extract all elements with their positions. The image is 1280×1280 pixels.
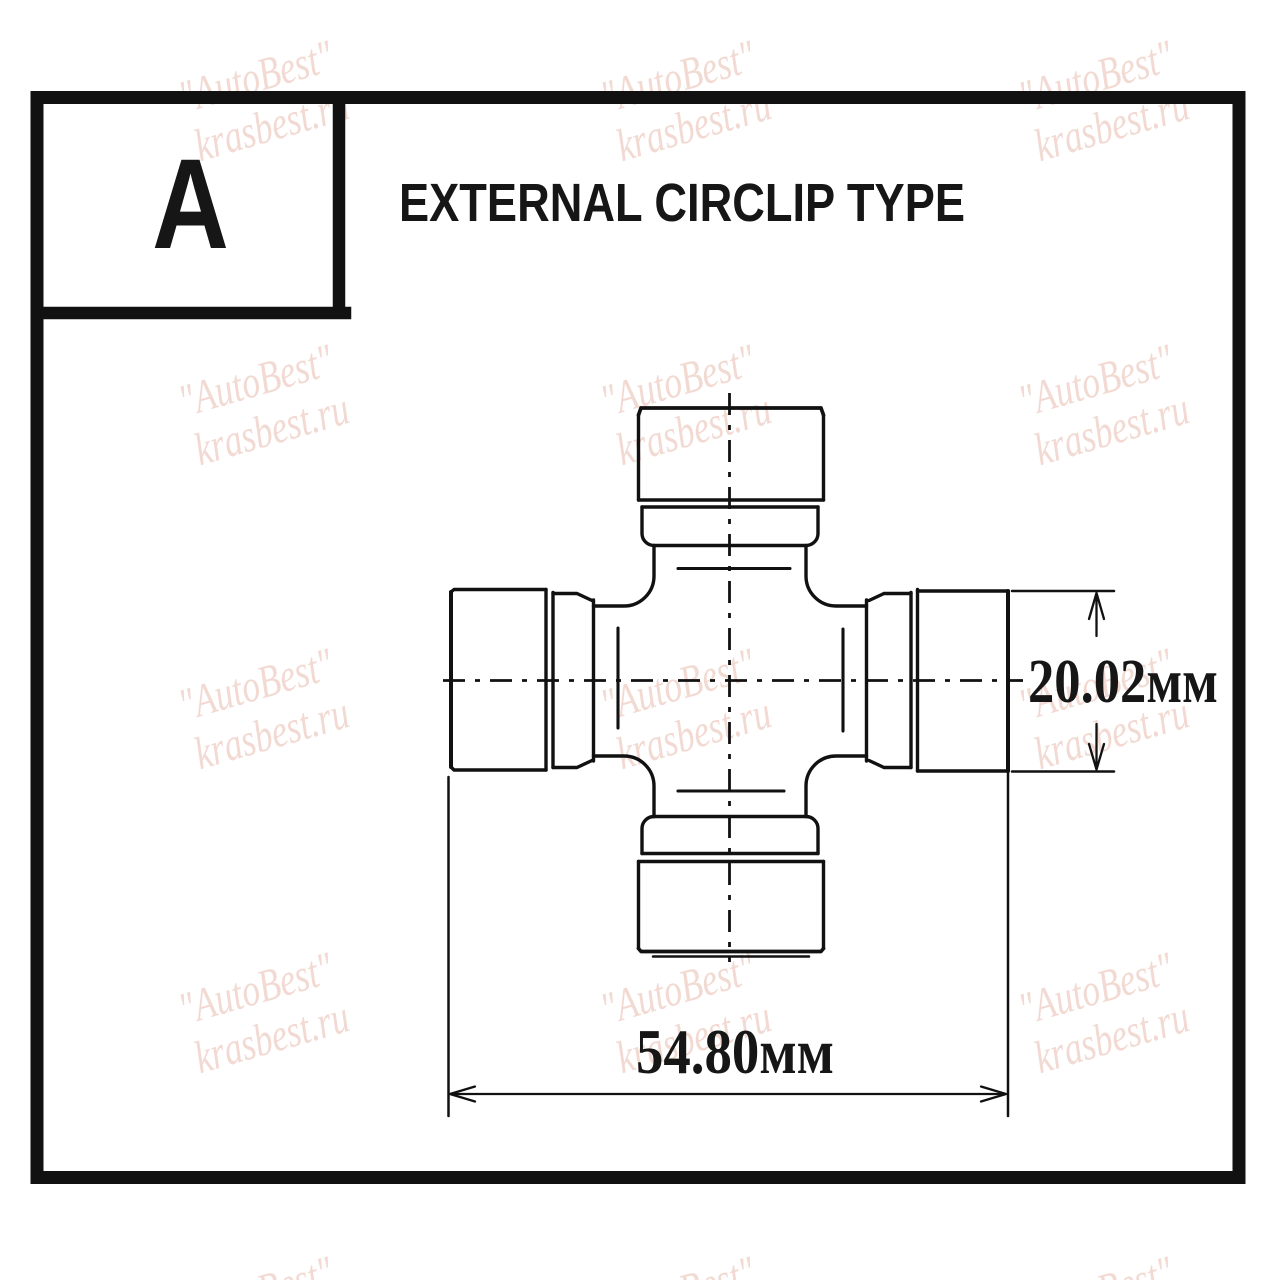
- svg-text:20.02мм: 20.02мм: [1028, 648, 1218, 716]
- svg-text:54.80мм: 54.80мм: [636, 1017, 834, 1087]
- svg-text:EXTERNAL CIRCLIP TYPE: EXTERNAL CIRCLIP TYPE: [399, 173, 965, 233]
- svg-text:A: A: [152, 133, 229, 276]
